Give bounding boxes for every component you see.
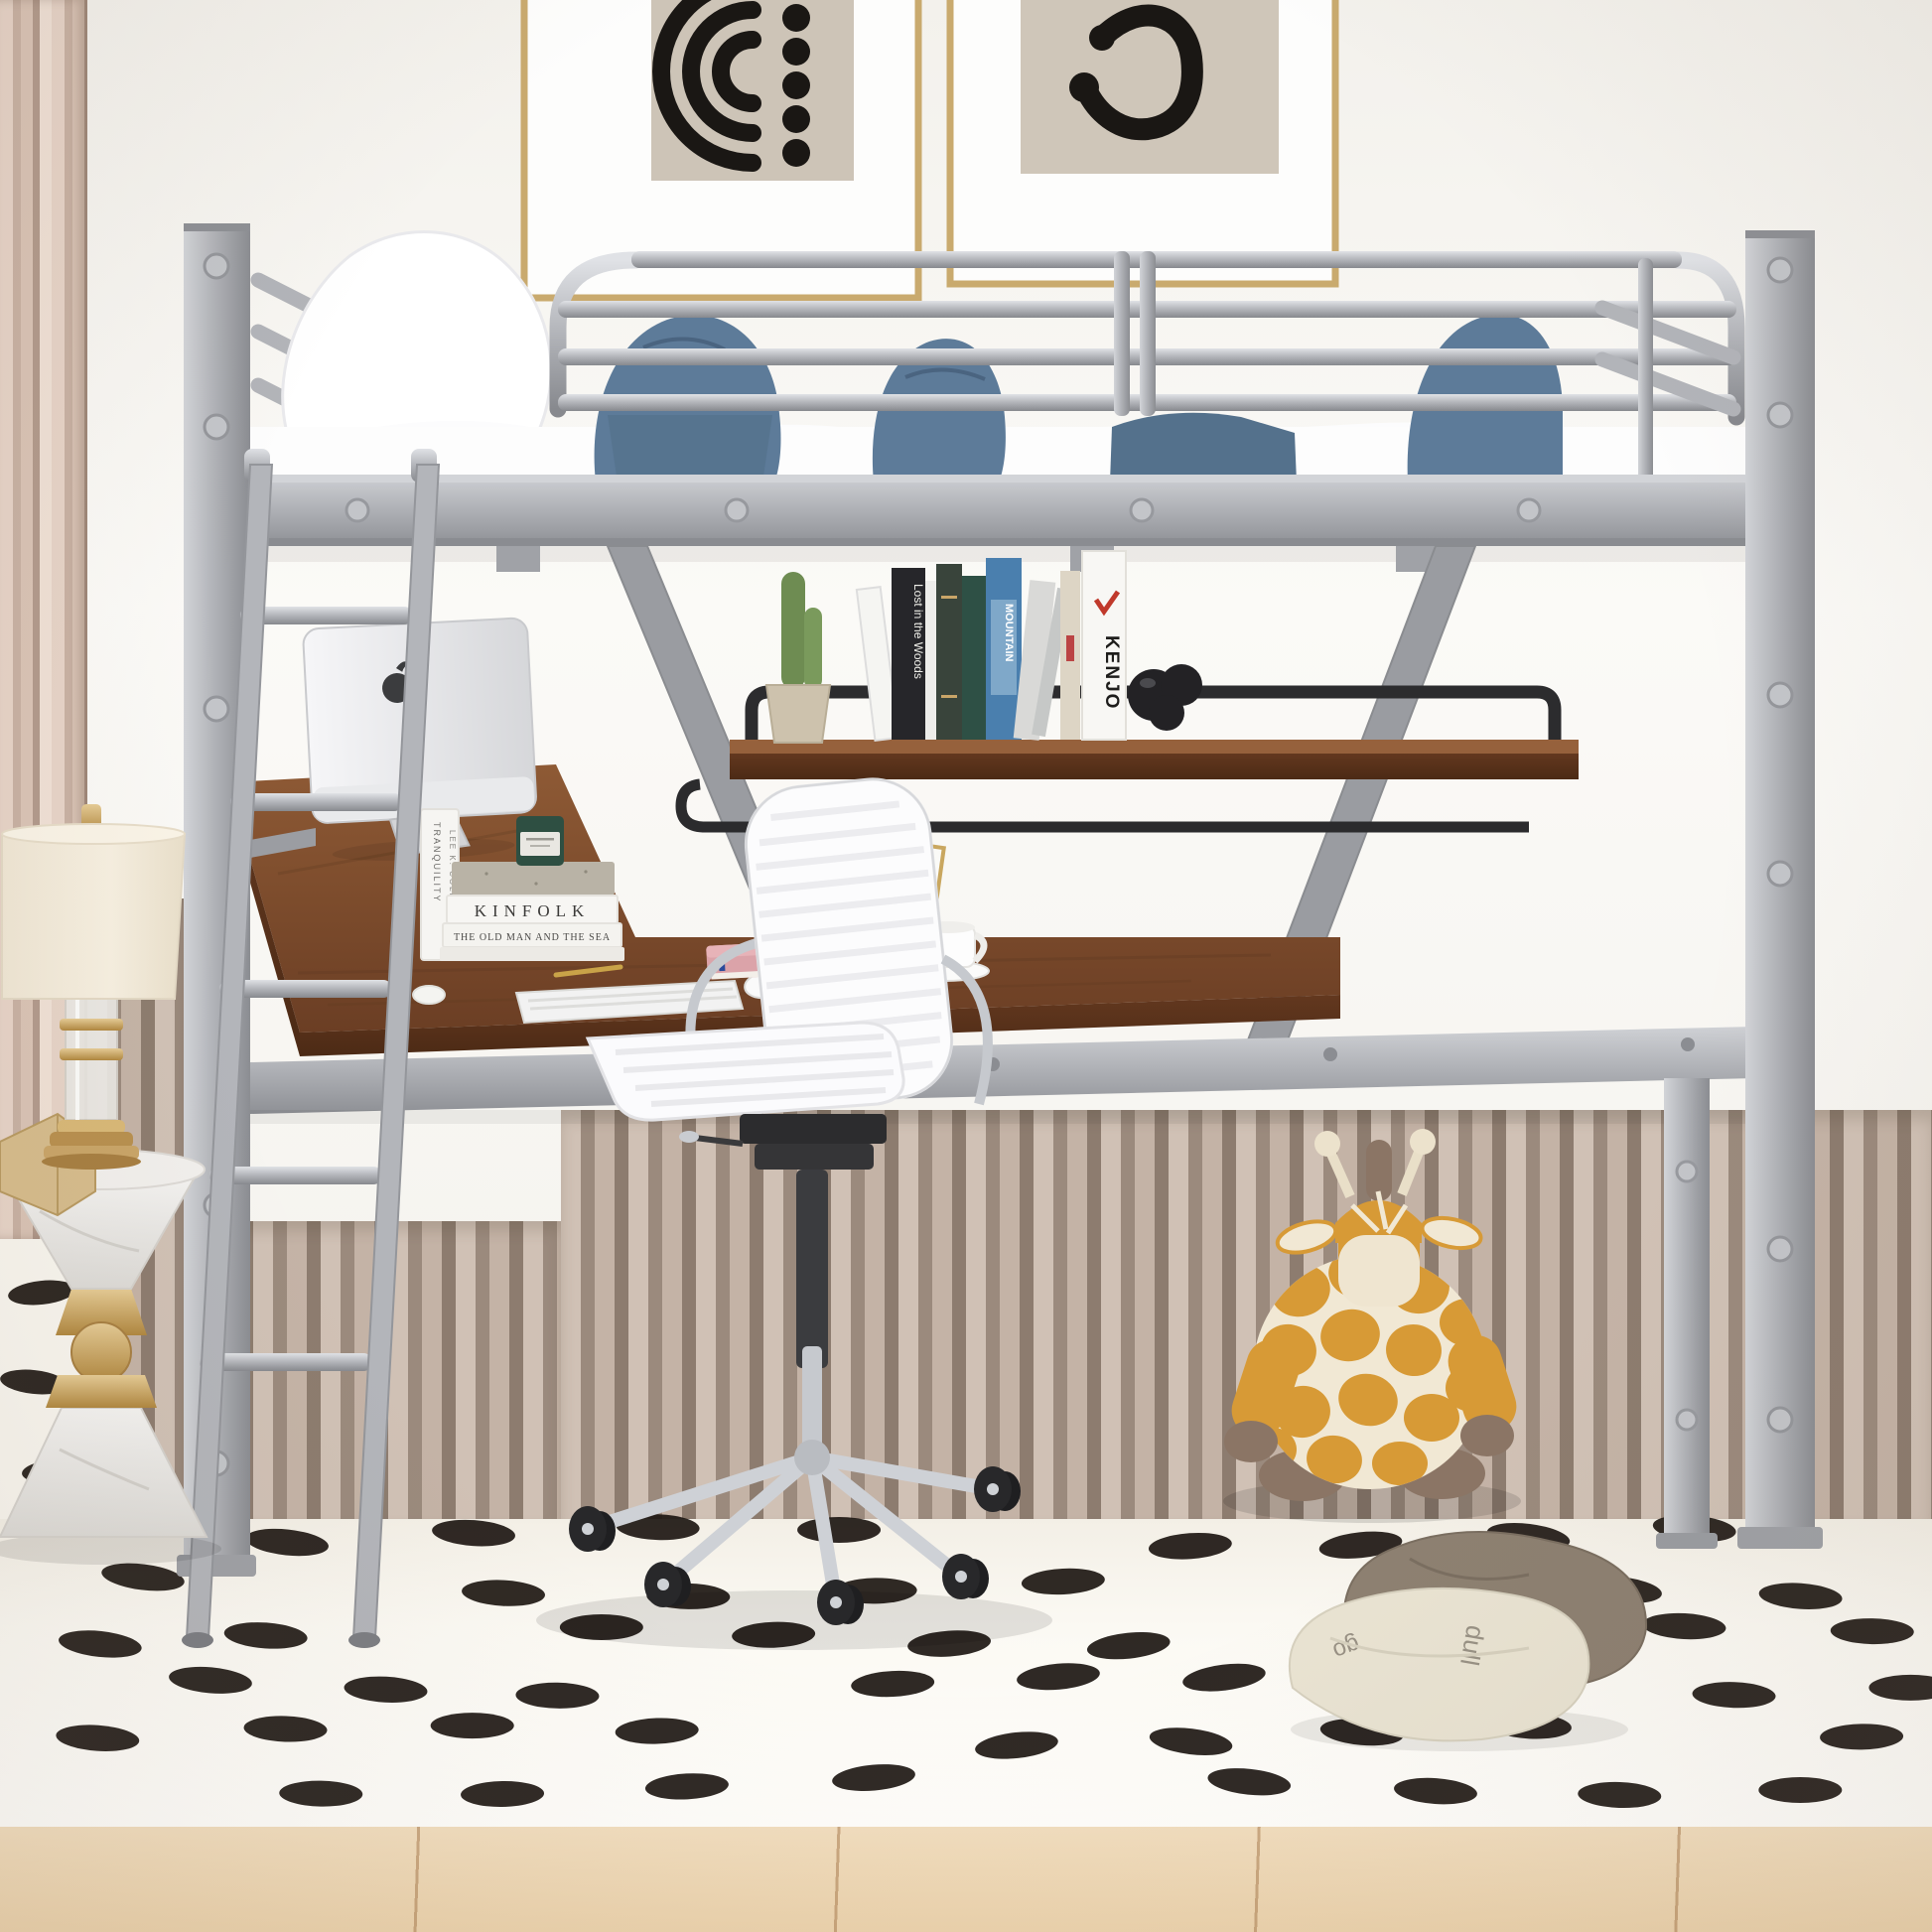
rug-dash [974, 1728, 1059, 1763]
rug-dash [1086, 1628, 1172, 1663]
book-lost-woods-title: Lost in the Woods [911, 584, 925, 679]
rug-dash [1578, 1781, 1662, 1810]
rug-dash [279, 1780, 362, 1807]
rug-dash [1016, 1660, 1101, 1693]
rug-dash [223, 1619, 309, 1651]
rug-dash [851, 1669, 935, 1699]
table-gold-knot [46, 1289, 157, 1408]
rug-dash [1393, 1775, 1478, 1807]
rug-dash [58, 1627, 143, 1662]
paper-disc [413, 986, 445, 1004]
giraffe-ossicone-left [1314, 1131, 1340, 1157]
book-kenjo: KENJO [1082, 551, 1126, 740]
lamp-body [42, 999, 141, 1170]
rug-pattern [56, 1512, 1932, 1809]
rug-dash [1758, 1777, 1842, 1803]
desk-leg-right [1664, 1078, 1710, 1537]
room-scene: Lost in the Woods MOUNTAIN KENJO [0, 0, 1932, 1932]
chair-gas-column [796, 1170, 828, 1368]
beam-bracket [496, 546, 540, 572]
rug-dash [1148, 1724, 1234, 1759]
rug-dash [1642, 1611, 1726, 1641]
giraffe-ear-right [1420, 1213, 1484, 1253]
rug-dash [1820, 1724, 1903, 1750]
rug-dash [243, 1715, 328, 1743]
rug-dash [461, 1578, 545, 1607]
rug-dash [797, 1517, 881, 1543]
green-candle [516, 816, 564, 866]
floor-pillows: go dull [1290, 1532, 1646, 1751]
rug-dash [615, 1717, 699, 1745]
rug-dash [1868, 1675, 1932, 1701]
shelf-plank-top [730, 740, 1579, 754]
table-lamp [2, 804, 185, 1170]
rug-dash [831, 1761, 916, 1794]
desk-book-stack: TRANQUILITY LEE K. COLE KINFOLK THE OLD … [421, 809, 624, 961]
rug-dash [168, 1664, 253, 1697]
lamp-shade [2, 834, 185, 999]
rug-dash [644, 1771, 729, 1801]
rug-dash [1206, 1764, 1292, 1799]
book-kinfolk-title: KINFOLK [475, 901, 591, 920]
giraffe-plush [1223, 1129, 1523, 1523]
book-kenjo-title: KENJO [1101, 635, 1122, 710]
shelf-books: Lost in the Woods MOUNTAIN KENJO [857, 551, 1126, 741]
rug-dash [56, 1723, 141, 1754]
book-tranquility-spine: TRANQUILITY [432, 822, 442, 903]
rug-dash [1758, 1581, 1844, 1612]
table-base-cone [0, 1408, 207, 1537]
giraffe-muzzle [1338, 1235, 1420, 1307]
shelf-plank-front [730, 754, 1579, 779]
rug-dash [1021, 1567, 1105, 1596]
bed-post-right [1737, 230, 1823, 1549]
rug-dash [244, 1525, 330, 1560]
rug-dash [1831, 1617, 1914, 1644]
book-mountain-title: MOUNTAIN [1003, 604, 1015, 662]
scene-art: Lost in the Woods MOUNTAIN KENJO [0, 0, 1932, 1932]
poster-right [950, 0, 1335, 284]
rug-dash [461, 1780, 544, 1807]
black-knot-sculpture [1128, 664, 1202, 731]
guardrail-connector [1114, 251, 1130, 416]
book-old-man-sea-title: THE OLD MAN AND THE SEA [454, 932, 611, 943]
rug-dash [344, 1675, 428, 1705]
giraffe-ossicone-right [1410, 1129, 1436, 1155]
cactus-plant [766, 572, 830, 743]
rug-dash [1692, 1681, 1776, 1710]
rug-dash [515, 1682, 599, 1709]
rug-dash [1181, 1660, 1268, 1696]
book-speckled [452, 862, 615, 896]
rug-dash [1148, 1530, 1233, 1562]
rug-dash [431, 1713, 514, 1738]
giraffe-ear-left [1274, 1216, 1338, 1259]
rug-dash [431, 1517, 516, 1549]
